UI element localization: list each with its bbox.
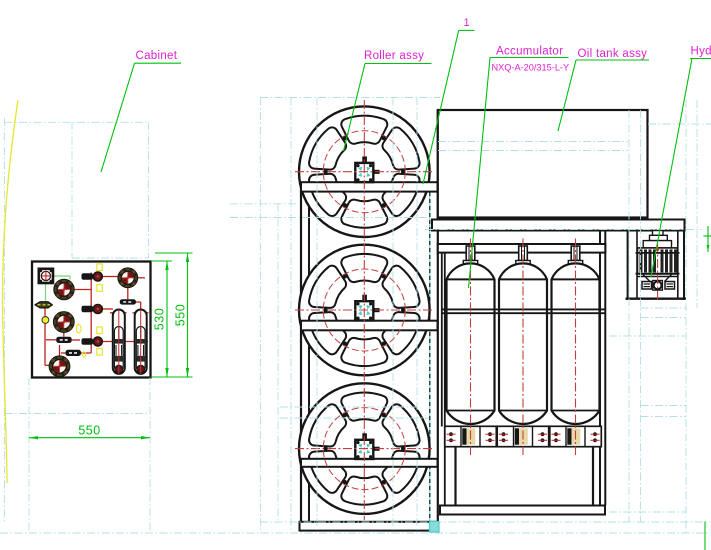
- svg-text:Hydr: Hydr: [691, 46, 711, 58]
- svg-text:Accumulator: Accumulator: [496, 46, 563, 58]
- svg-text:530: 530: [153, 308, 167, 330]
- svg-text:Cabinet: Cabinet: [136, 50, 178, 62]
- svg-text:550: 550: [78, 424, 100, 438]
- svg-text:Oil tank assy: Oil tank assy: [578, 48, 648, 60]
- svg-text:1: 1: [464, 17, 470, 29]
- svg-text:550: 550: [174, 304, 188, 326]
- svg-text:Roller assy: Roller assy: [364, 50, 424, 62]
- svg-text:NXQ-A-20/315-L-Y: NXQ-A-20/315-L-Y: [492, 63, 570, 73]
